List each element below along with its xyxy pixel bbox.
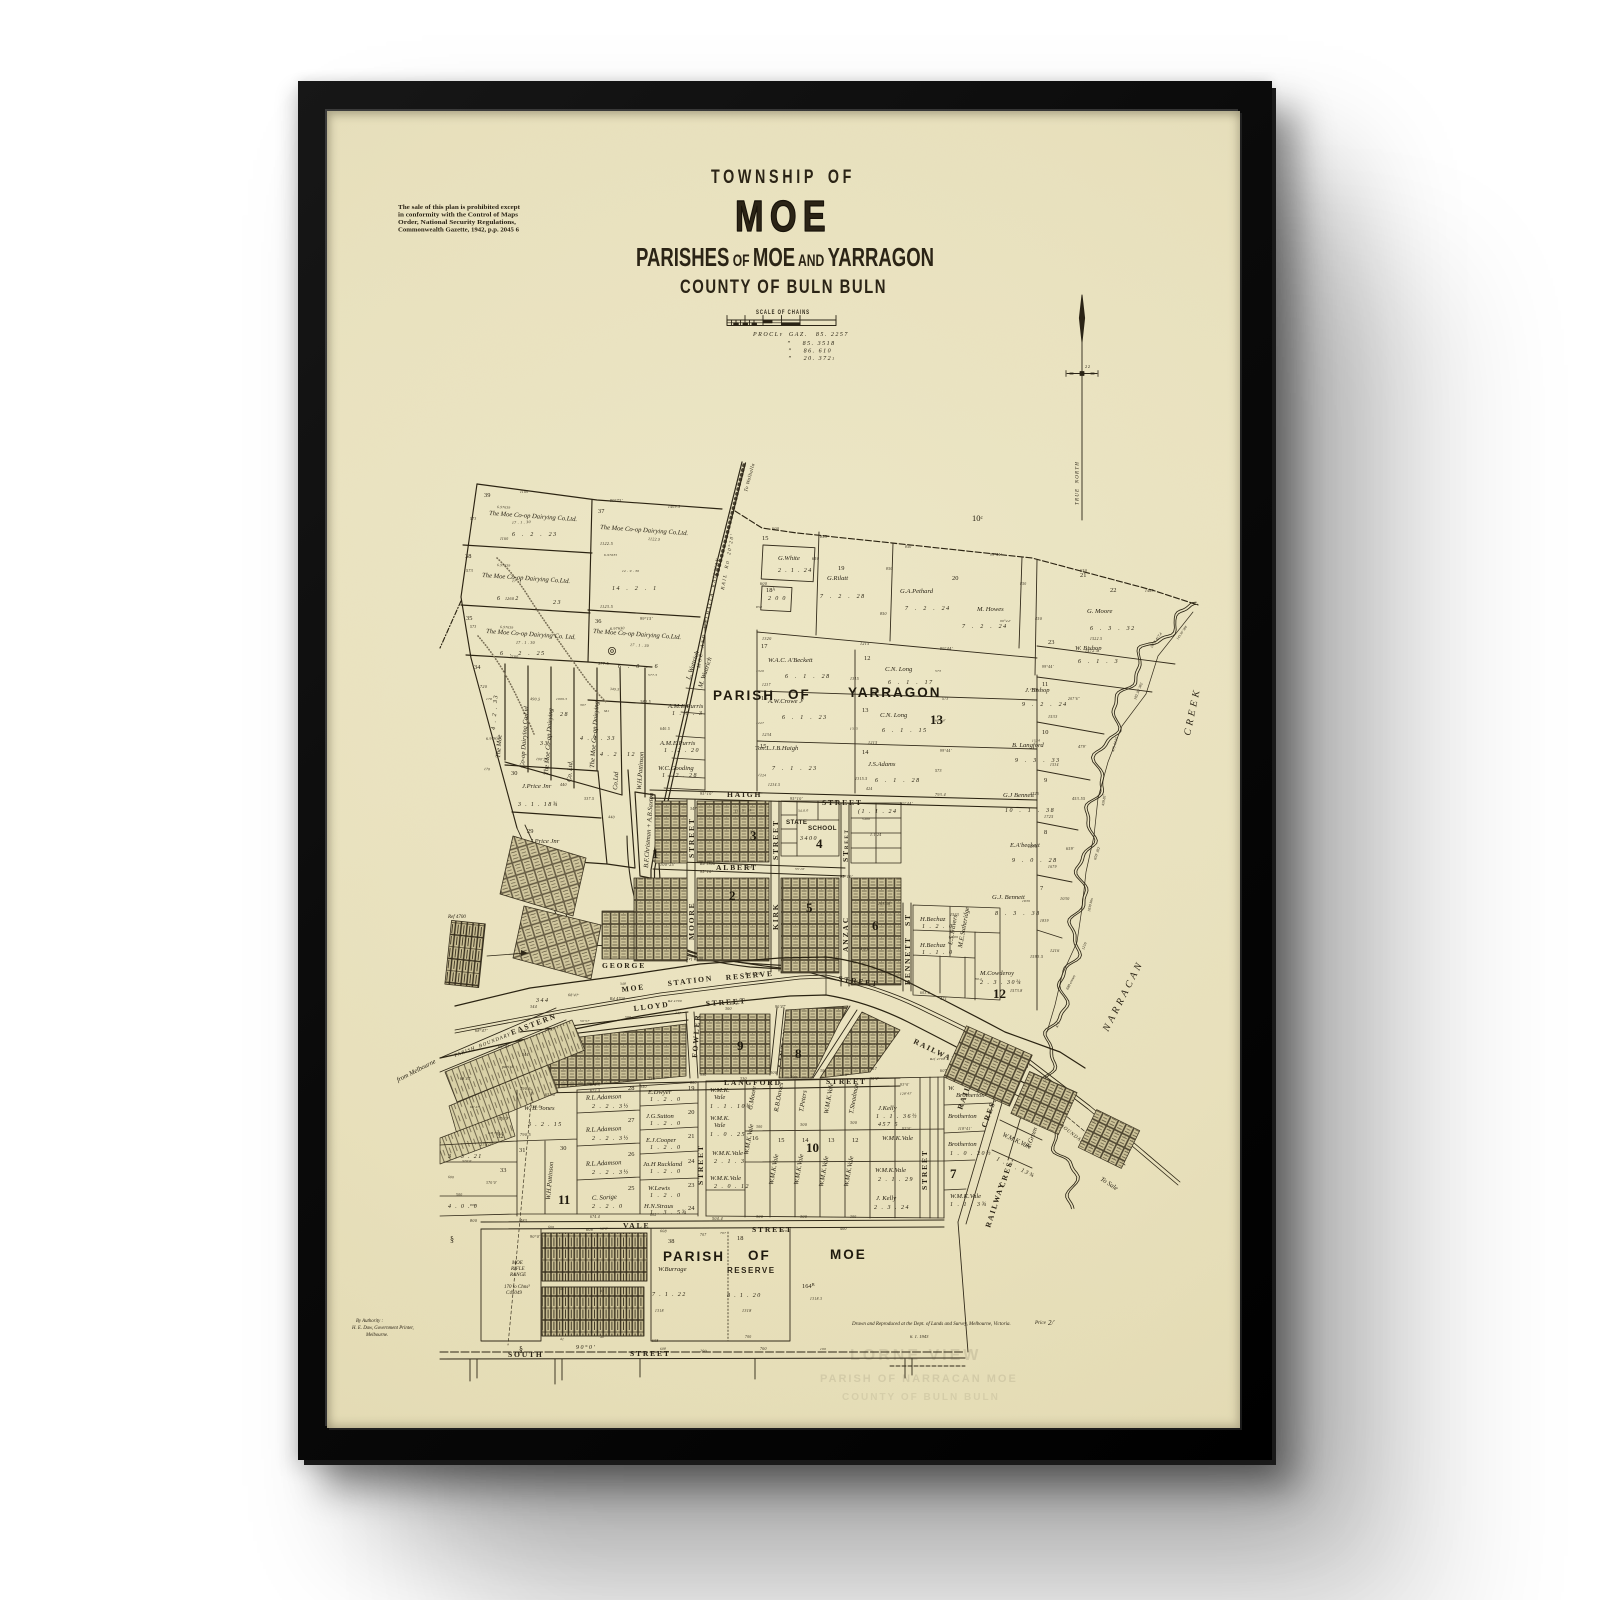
svg-text:W.M.K.Vale: W.M.K.Vale [712, 1150, 743, 1157]
svg-text:PARISHES OF MOE AND YARRAGON: PARISHES OF MOE AND YARRAGON [636, 242, 934, 272]
svg-text:24: 24 [688, 1158, 695, 1165]
svg-text:672.3: 672.3 [590, 1088, 600, 1093]
svg-text:80.2: 80.2 [975, 977, 982, 981]
svg-text:344: 344 [535, 997, 550, 1004]
svg-text:357: 357 [870, 1066, 878, 1071]
svg-text:15: 15 [778, 1137, 784, 1144]
svg-text:1 . 2 . 0: 1 . 2 . 0 [650, 1193, 682, 1199]
svg-text:19: 19 [838, 565, 844, 572]
svg-text:Rd 4700: Rd 4700 [609, 997, 625, 1001]
svg-text:66'47': 66'47' [470, 1105, 480, 1109]
svg-text:” 86. 610: ” 86. 610 [788, 349, 832, 355]
svg-text:13: 13 [862, 707, 868, 714]
svg-text:300: 300 [756, 1214, 763, 1219]
svg-text:850: 850 [880, 612, 887, 616]
svg-text:2 . 1 . 3: 2 . 1 . 3 [714, 1159, 746, 1165]
svg-text:190: 190 [700, 1349, 707, 1353]
svg-text:300: 300 [770, 1070, 777, 1075]
svg-text:659': 659' [1066, 846, 1074, 851]
svg-text:38: 38 [465, 553, 471, 560]
svg-text:30: 30 [560, 1145, 566, 1152]
svg-text:12: 12 [864, 655, 870, 662]
svg-text:1009.5: 1009.5 [556, 697, 567, 701]
svg-text:855: 855 [820, 534, 827, 539]
svg-text:G.White: G.White [778, 555, 800, 562]
svg-text:490.5: 490.5 [530, 697, 540, 702]
svg-text:J.S.Adams: J.S.Adams [868, 761, 896, 768]
svg-text:12: 12 [993, 986, 1006, 1001]
svg-text:PARISH OF NARRACAN MOE: PARISH OF NARRACAN MOE [820, 1373, 1018, 1385]
svg-text:99°44': 99°44' [900, 801, 913, 806]
svg-text:21: 21 [688, 1133, 694, 1140]
svg-text:1234: 1234 [762, 732, 772, 737]
svg-text:7 . 2 . 24: 7 . 2 . 24 [962, 623, 1008, 630]
svg-text:1160: 1160 [510, 655, 519, 659]
svg-text:parish: parish [501, 1065, 514, 1069]
svg-text:2 . 2 . 0: 2 . 2 . 0 [592, 1204, 624, 1210]
svg-text:YARRAGON: YARRAGON [848, 685, 942, 700]
svg-text:608: 608 [660, 1229, 667, 1233]
svg-text:93'0': 93'0' [840, 1073, 848, 1077]
svg-text:7 . 1 . 23: 7 . 1 . 23 [772, 766, 818, 772]
svg-text:14: 14 [802, 1137, 809, 1144]
svg-text:700: 700 [760, 1347, 767, 1351]
svg-text:300: 300 [790, 1075, 797, 1079]
svg-text:457 5: 457 5 [878, 1121, 899, 1128]
svg-text:E.Dwyer: E.Dwyer [647, 1089, 672, 1096]
svg-text:1030: 1030 [1060, 896, 1070, 901]
svg-text:1224: 1224 [758, 773, 766, 777]
svg-text:1227: 1227 [756, 721, 764, 725]
svg-text:1318.3: 1318.3 [810, 1297, 822, 1301]
svg-text:4 . 2 . 12: 4 . 2 . 12 [600, 751, 636, 758]
svg-text:STATE: STATE [786, 819, 807, 826]
svg-text:1 . 2 . 0: 1 . 2 . 0 [650, 1121, 682, 1127]
svg-text:479': 479' [1078, 744, 1086, 749]
svg-text:1 . 2 . 0: 1 . 2 . 0 [650, 1145, 682, 1151]
svg-text:1215: 1215 [868, 740, 878, 745]
svg-text:COUNTY OF BULN BULN: COUNTY OF BULN BULN [680, 276, 887, 298]
svg-text:33: 33 [500, 1167, 506, 1174]
svg-text:§: § [450, 1235, 454, 1244]
svg-text:380.5: 380.5 [640, 699, 651, 704]
svg-text:13: 13 [828, 1137, 834, 1144]
svg-text:300: 300 [725, 1007, 732, 1011]
svg-text:OF: OF [788, 687, 811, 702]
svg-text:25: 25 [628, 1185, 634, 1192]
svg-text:1122.5: 1122.5 [648, 537, 660, 542]
svg-text:15: 15 [760, 743, 766, 750]
svg-text:8 . 1 . 20: 8 . 1 . 20 [727, 1293, 762, 1299]
svg-text:347: 347 [690, 807, 697, 811]
svg-text:1 . 0 . 20½: 1 . 0 . 20½ [950, 1150, 992, 1157]
svg-text:95°10': 95°10' [790, 796, 803, 801]
svg-text:9 . 0 . 28: 9 . 0 . 28 [1012, 858, 1058, 864]
svg-text:12 . 9 . 30: 12 . 9 . 30 [622, 569, 639, 573]
svg-text:5'10': 5'10' [745, 865, 753, 869]
svg-text:23: 23 [553, 600, 562, 606]
svg-text:330: 330 [700, 1073, 707, 1077]
svg-text:500: 500 [456, 1193, 463, 1197]
svg-text:3 . 2 . 15: 3 . 2 . 15 [527, 1122, 563, 1128]
svg-text:573: 573 [470, 517, 477, 521]
svg-text:99°44': 99°44' [940, 749, 952, 753]
svg-text:440: 440 [560, 783, 567, 787]
svg-text:270'0': 270'0' [480, 1142, 492, 1147]
svg-text:66°47': 66°47' [498, 1044, 511, 1049]
svg-text:640.5: 640.5 [660, 727, 670, 731]
svg-text:Drawn and Reproduced at the De: Drawn and Reproduced at the Dept. of Lan… [851, 1322, 1011, 1327]
svg-text:J. Kelly: J. Kelly [876, 1195, 896, 1202]
svg-text:W.M.K.Vale: W.M.K.Vale [950, 1193, 981, 1200]
svg-text:90'0': 90'0' [600, 1227, 608, 1231]
svg-text:300: 300 [800, 1214, 807, 1219]
svg-text:1725: 1725 [1030, 792, 1039, 796]
svg-text:99°44': 99°44' [940, 646, 953, 651]
svg-text:95°10': 95°10' [700, 791, 713, 796]
svg-text:90'47': 90'47' [730, 1002, 740, 1006]
svg-text:1237: 1237 [762, 683, 771, 687]
svg-text:350: 350 [640, 1085, 647, 1089]
svg-text:1315: 1315 [850, 677, 859, 681]
svg-text:1409.5: 1409.5 [668, 505, 680, 509]
svg-text:C45049: C45049 [506, 1291, 522, 1296]
svg-text:M. Howes: M. Howes [976, 606, 1004, 613]
svg-text:1215: 1215 [860, 641, 870, 646]
svg-text:59'57': 59'57' [580, 1019, 590, 1023]
svg-text:68'47': 68'47' [568, 993, 579, 998]
svg-text:Commonwealth Gazette, 1942, p.: Commonwealth Gazette, 1942, p.p. 2045 6 [398, 228, 519, 234]
svg-text:2 . 1 . 29: 2 . 1 . 29 [878, 1177, 914, 1183]
svg-text:330.6: 330.6 [530, 1104, 541, 1109]
svg-text:C.N. Long: C.N. Long [880, 712, 908, 719]
svg-text:C. Sorige: C. Sorige [592, 1194, 617, 1202]
svg-text:27: 27 [628, 1117, 635, 1124]
svg-text:850: 850 [886, 567, 893, 571]
svg-text:Ref 4700: Ref 4700 [744, 972, 761, 976]
svg-text:93°0': 93°0' [900, 1083, 910, 1087]
svg-text:7 . 2 . 28: 7 . 2 . 28 [820, 594, 866, 600]
svg-text:W.M.K.Vale: W.M.K.Vale [875, 1167, 906, 1174]
svg-text:W.: W. [948, 1085, 955, 1092]
svg-text:55'10': 55'10' [795, 867, 805, 871]
svg-text:6.97639: 6.97639 [497, 505, 511, 510]
svg-text:1160: 1160 [520, 490, 529, 494]
svg-text:KIRK: KIRK [771, 903, 780, 930]
svg-text:” 20. 3721: ” 20. 3721 [788, 356, 836, 362]
svg-text:By Authority :: By Authority : [356, 1319, 383, 1324]
svg-text:COUNTY OF BULN BULN: COUNTY OF BULN BULN [842, 1392, 1000, 1403]
svg-text:MOE: MOE [511, 1261, 523, 1266]
svg-text:1 . 2 . 20: 1 . 2 . 20 [664, 748, 700, 754]
svg-text:790.6: 790.6 [520, 1086, 531, 1091]
svg-text:1933: 1933 [1030, 687, 1038, 691]
svg-text:600: 600 [448, 1175, 454, 1179]
svg-text:6 . 1 . 15: 6 . 1 . 15 [882, 728, 928, 734]
svg-text:347: 347 [675, 1011, 681, 1015]
svg-text:15: 15 [762, 535, 768, 542]
svg-text:VALE: VALE [623, 1221, 650, 1230]
svg-text:A.M.E.Purris: A.M.E.Purris [659, 740, 696, 747]
svg-text:17 . 1: 17 . 1 [512, 579, 522, 584]
svg-text:Rd 4700: Rd 4700 [667, 999, 682, 1003]
svg-text:19: 19 [688, 1085, 694, 1092]
svg-text:608: 608 [660, 1347, 666, 1351]
svg-text:424: 424 [866, 787, 873, 791]
svg-text:2/′: 2/′ [1048, 1319, 1055, 1327]
svg-text:6 . 1 . 3: 6 . 1 . 3 [1078, 659, 1119, 665]
svg-text:10: 10 [1042, 729, 1048, 736]
svg-text:35: 35 [466, 615, 472, 622]
svg-text:W.Lewis: W.Lewis [648, 1185, 670, 1192]
svg-text:33: 33 [539, 741, 549, 747]
svg-text:MOORE: MOORE [687, 901, 696, 940]
svg-text:6 . 1 . 28: 6 . 1 . 28 [785, 674, 831, 680]
svg-text:672.3: 672.3 [590, 1083, 600, 1087]
svg-text:1 . 1 . 3¾: 1 . 1 . 3¾ [950, 1202, 988, 1208]
svg-text:504.4: 504.4 [712, 1216, 723, 1221]
svg-text:B. Langford: B. Langford [1012, 742, 1044, 749]
svg-text:99°44': 99°44' [1000, 619, 1011, 623]
svg-text:300: 300 [800, 1122, 807, 1127]
svg-text:95°10': 95°10' [700, 869, 713, 874]
svg-text:1216: 1216 [1050, 948, 1060, 953]
svg-text:6 . 0 . 6: 6 . 0 . 6 [618, 664, 659, 670]
svg-text:1 . 1 . 0: 1 . 1 . 0 [922, 950, 954, 956]
svg-text:1 . 2 . 0: 1 . 2 . 0 [650, 1169, 682, 1175]
svg-text:SCALE OF CHAINS: SCALE OF CHAINS [756, 309, 810, 316]
svg-text:103'30': 103'30' [878, 902, 892, 906]
svg-text:6 . 3 . 32: 6 . 3 . 32 [1090, 626, 1136, 632]
svg-text:W.Burrage: W.Burrage [658, 1266, 687, 1273]
svg-text:7 . 2 . 24: 7 . 2 . 24 [905, 605, 951, 612]
svg-text:H. E. Daw, Government Printer,: H. E. Daw, Government Printer, [351, 1326, 414, 1331]
svg-text:440: 440 [608, 815, 615, 819]
svg-text:790.5: 790.5 [520, 1132, 531, 1137]
svg-text:G. Moore: G. Moore [1087, 608, 1112, 615]
svg-text:Rd 1306: Rd 1306 [699, 862, 715, 866]
svg-text:573: 573 [470, 625, 477, 629]
svg-text:7 . 1 . 22: 7 . 1 . 22 [652, 1292, 687, 1298]
svg-text:6.97639: 6.97639 [500, 625, 514, 630]
svg-text:178: 178 [484, 767, 490, 771]
svg-text:178: 178 [486, 697, 492, 701]
svg-text:in conformity with the Control: in conformity with the Control of Maps [398, 213, 519, 219]
svg-text:99°44': 99°44' [935, 718, 946, 723]
svg-text:1122.5: 1122.5 [600, 541, 613, 546]
svg-text:RESERVE: RESERVE [727, 1266, 776, 1275]
svg-text:350: 350 [648, 1076, 655, 1081]
svg-text:43: 43 [600, 1289, 604, 1293]
svg-text:450: 450 [1035, 616, 1042, 621]
svg-text:23: 23 [1048, 639, 1054, 646]
svg-text:720: 720 [480, 684, 487, 689]
svg-text:99°44': 99°44' [990, 553, 1002, 557]
svg-text:128'41': 128'41' [900, 1091, 913, 1096]
svg-text:6. 1. 1943: 6. 1. 1943 [910, 1334, 929, 1339]
svg-text:800: 800 [470, 1218, 477, 1223]
svg-text:PARISH: PARISH [663, 1249, 725, 1264]
svg-text:Price: Price [1034, 1321, 1047, 1326]
svg-text:190: 190 [820, 1347, 826, 1351]
svg-text:6.97635: 6.97635 [604, 553, 617, 557]
svg-text:J.G.Sutton: J.G.Sutton [646, 1113, 675, 1120]
svg-text:34.0.0: 34.0.0 [798, 808, 809, 813]
svg-text:207'6": 207'6" [1068, 697, 1080, 701]
svg-text:99°44': 99°44' [1042, 665, 1054, 669]
svg-text:609: 609 [952, 935, 958, 939]
svg-text:850: 850 [1020, 582, 1027, 586]
svg-text:608: 608 [548, 1225, 554, 1229]
svg-text:1315: 1315 [850, 727, 858, 731]
svg-text:1 . 2 . 0: 1 . 2 . 0 [650, 1097, 682, 1103]
svg-text:5400: 5400 [862, 817, 870, 821]
svg-text:31: 31 [519, 1147, 525, 1154]
svg-text:4 . 1 . 33: 4 . 1 . 33 [580, 735, 616, 742]
svg-text:602: 602 [650, 1213, 657, 1217]
svg-text:93'0': 93'0' [780, 1229, 788, 1233]
svg-text:6 . 1 . 28: 6 . 1 . 28 [875, 778, 921, 784]
svg-text:RANGE: RANGE [509, 1273, 526, 1278]
svg-text:6 . 2 . 23: 6 . 2 . 23 [512, 532, 558, 538]
svg-text:6 . 2 . 25: 6 . 2 . 25 [500, 651, 546, 657]
svg-text:Order, National Security Regul: Order, National Security Regulations, [398, 220, 517, 226]
svg-text:344: 344 [530, 1004, 537, 1009]
svg-text:608: 608 [652, 1339, 659, 1343]
svg-text:300: 300 [850, 1215, 857, 1219]
svg-text:65'30': 65'30' [545, 1093, 556, 1097]
svg-text:(1 . 1 . 24: (1 . 1 . 24 [858, 808, 898, 815]
svg-text:GT 790.6: GT 790.6 [488, 1131, 504, 1135]
svg-text:2 . 0 . 12: 2 . 0 . 12 [714, 1184, 750, 1190]
svg-text:1839: 1839 [1040, 919, 1049, 923]
svg-text:600: 600 [760, 581, 767, 586]
svg-text:A.M.E.Purris: A.M.E.Purris [667, 703, 704, 710]
svg-text:W.M.K.: W.M.K. [710, 1087, 730, 1094]
svg-text:79'57': 79'57' [545, 1027, 556, 1032]
svg-text:34: 34 [474, 664, 481, 671]
svg-text:577.5: 577.5 [648, 673, 657, 677]
svg-text:573: 573 [466, 568, 473, 573]
svg-text:H.Bechaz: H.Bechaz [919, 916, 946, 923]
svg-text:800: 800 [470, 1203, 476, 1207]
svg-text:30: 30 [511, 770, 517, 777]
svg-text:17 . 1 . 30: 17 . 1 . 30 [516, 641, 535, 645]
svg-text:21: 21 [1080, 572, 1086, 579]
svg-text:30'4': 30'4' [870, 1077, 879, 1081]
svg-text:1 . 0 . 25: 1 . 0 . 25 [710, 1132, 746, 1138]
svg-text:500: 500 [625, 1015, 631, 1019]
svg-text:118°41': 118°41' [958, 1127, 972, 1131]
svg-text:9: 9 [737, 1038, 744, 1053]
svg-text:573: 573 [942, 697, 949, 701]
svg-text:18: 18 [737, 1235, 743, 1242]
svg-text:” 85. 3518: ” 85. 3518 [787, 341, 836, 347]
svg-text:1.1.24: 1.1.24 [870, 833, 882, 837]
svg-text:93°0': 93°0' [902, 1127, 912, 1131]
svg-text:Brotherton: Brotherton [948, 1141, 977, 1148]
svg-text:STREET: STREET [696, 1144, 705, 1185]
svg-text:100°25': 100°25' [660, 862, 675, 867]
svg-text:68°47': 68°47' [475, 1028, 488, 1033]
svg-text:GEORGE: GEORGE [602, 961, 646, 970]
svg-text:1533: 1533 [1048, 714, 1058, 719]
svg-text:5: 5 [806, 900, 813, 915]
svg-text:9 . 2 . 24: 9 . 2 . 24 [1022, 701, 1068, 708]
svg-text:8: 8 [795, 1046, 802, 1061]
svg-text:STREET: STREET [771, 819, 780, 860]
svg-text:3: 3 [750, 828, 757, 843]
svg-text:600: 600 [690, 1081, 697, 1085]
svg-text:793.4: 793.4 [935, 792, 946, 797]
svg-text:1679: 1679 [1048, 865, 1057, 869]
svg-text:577.5: 577.5 [598, 661, 609, 666]
svg-text:90°0': 90°0' [530, 1234, 540, 1239]
svg-text:TOWNSHIP OF: TOWNSHIP OF [711, 166, 855, 188]
svg-text:HAIGH: HAIGH [727, 790, 762, 799]
svg-text:1 . 1 . 36½: 1 . 1 . 36½ [876, 1113, 918, 1120]
svg-text:1573.8: 1573.8 [1010, 989, 1023, 993]
svg-text:1234.5: 1234.5 [768, 783, 780, 787]
svg-text:Vale: Vale [714, 1122, 725, 1129]
svg-text:170 to Chns³: 170 to Chns³ [504, 1284, 530, 1290]
svg-text:348: 348 [620, 982, 626, 986]
svg-text:1522.5: 1522.5 [1090, 637, 1102, 641]
svg-text:38: 38 [668, 1238, 674, 1245]
svg-text:1: 1 [652, 846, 659, 861]
svg-text:BENNETT: BENNETT [903, 936, 912, 985]
svg-text:J.Price Jnr: J.Price Jnr [522, 783, 552, 790]
svg-text:17: 17 [761, 643, 768, 650]
svg-text:2 . 1 . 24: 2 . 1 . 24 [778, 567, 813, 574]
svg-text:RIFLE: RIFLE [510, 1267, 525, 1272]
svg-text:330: 330 [740, 1077, 747, 1081]
svg-text:W.M.K.: W.M.K. [710, 1115, 730, 1122]
svg-text:6.97630: 6.97630 [610, 626, 625, 631]
svg-text:2 2: 2 2 [1085, 364, 1090, 369]
svg-text:24: 24 [688, 1205, 695, 1212]
svg-text:41: 41 [560, 1337, 564, 1341]
svg-text:8 . 3 . 38: 8 . 3 . 38 [995, 911, 1041, 917]
svg-text:1 . 1 . 10¾: 1 . 1 . 10¾ [710, 1104, 752, 1110]
svg-text:674.4: 674.4 [590, 1215, 600, 1219]
svg-text:G.Rilatt: G.Rilatt [827, 575, 848, 582]
svg-text:3400: 3400 [799, 835, 818, 842]
svg-text:1123.5: 1123.5 [600, 604, 613, 609]
svg-text:700: 700 [745, 1335, 752, 1339]
svg-text:2 . 2 . 3½: 2 . 2 . 3½ [592, 1103, 630, 1110]
svg-text:Ref 3300: Ref 3300 [685, 956, 704, 961]
svg-text:H.N.Straus: H.N.Straus [643, 1203, 674, 1210]
svg-text:2 0 0: 2 0 0 [768, 596, 787, 602]
svg-text:M1: M1 [603, 709, 609, 713]
svg-text:95°10': 95°10' [840, 874, 853, 879]
svg-text:300: 300 [850, 1120, 857, 1125]
svg-text:SOUTH: SOUTH [508, 1350, 544, 1359]
svg-text:1215: 1215 [870, 689, 880, 694]
svg-text:22: 22 [1110, 587, 1116, 594]
svg-text:Ref 4700: Ref 4700 [929, 1057, 945, 1061]
svg-text:6 . 1 . 23: 6 . 1 . 23 [782, 715, 828, 721]
svg-text:349.5: 349.5 [610, 687, 620, 691]
svg-text:1320: 1320 [762, 636, 772, 641]
svg-text:400: 400 [840, 1227, 847, 1231]
svg-text:PROCLY GAZ. 85. 2257: PROCLY GAZ. 85. 2257 [752, 332, 849, 338]
svg-text:603.6: 603.6 [920, 991, 930, 995]
svg-text:300: 300 [756, 1125, 763, 1129]
svg-text:23: 23 [688, 1182, 694, 1189]
svg-text:39: 39 [484, 492, 490, 499]
